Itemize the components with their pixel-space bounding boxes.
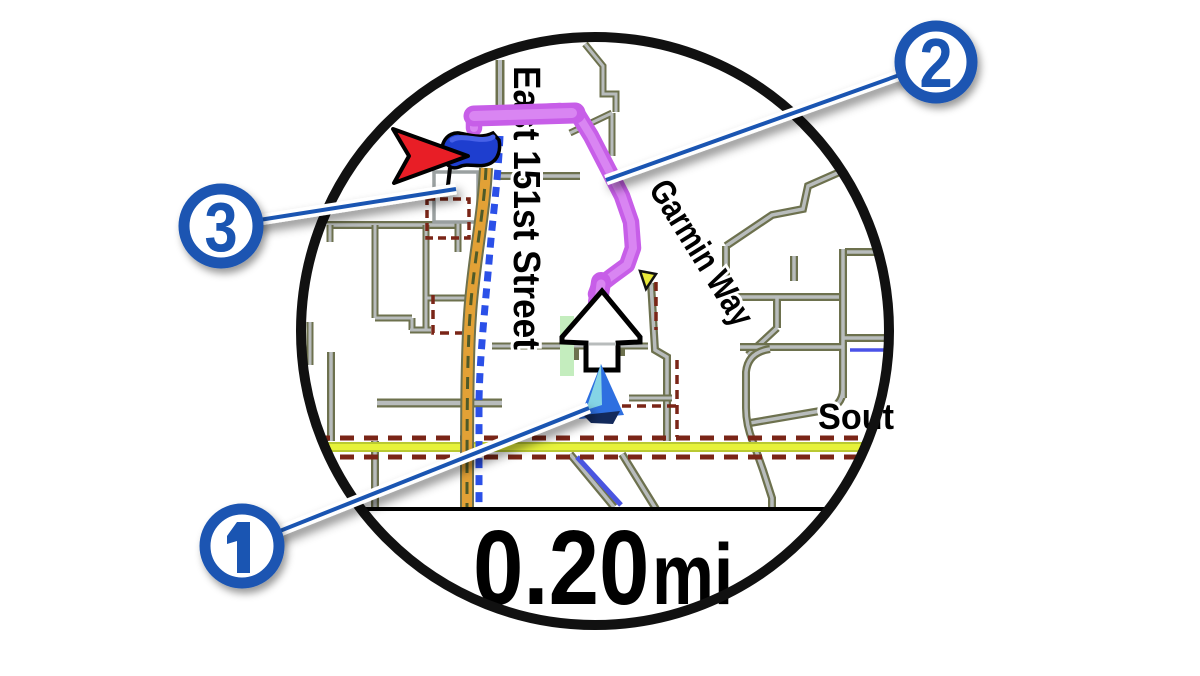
svg-text:3: 3: [204, 187, 237, 266]
svg-text:2: 2: [919, 23, 952, 102]
